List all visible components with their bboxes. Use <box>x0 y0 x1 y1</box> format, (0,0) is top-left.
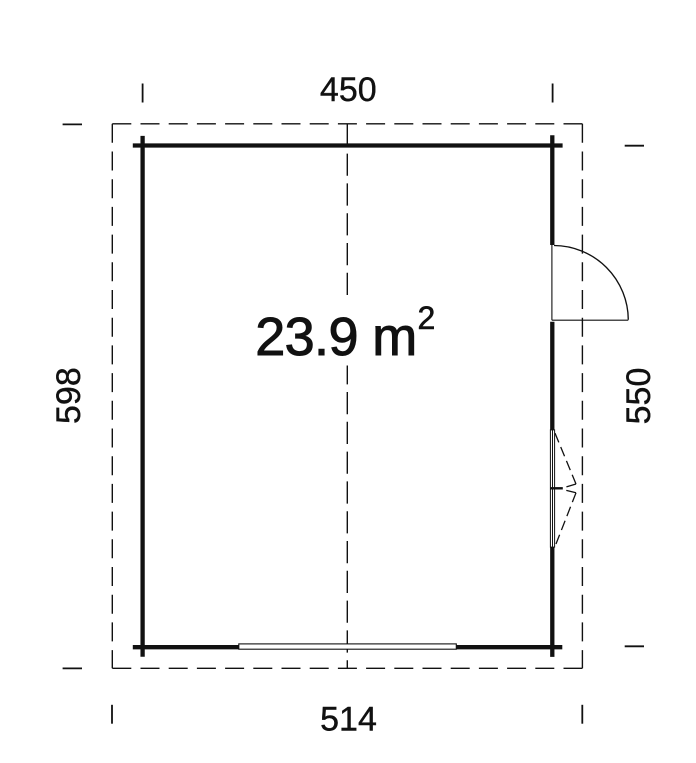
svg-text:550: 550 <box>620 368 658 425</box>
svg-text:450: 450 <box>320 71 377 109</box>
svg-text:2: 2 <box>418 300 436 336</box>
svg-text:514: 514 <box>320 700 377 738</box>
svg-text:598: 598 <box>50 367 88 424</box>
svg-text:23.9 m: 23.9 m <box>255 307 417 367</box>
